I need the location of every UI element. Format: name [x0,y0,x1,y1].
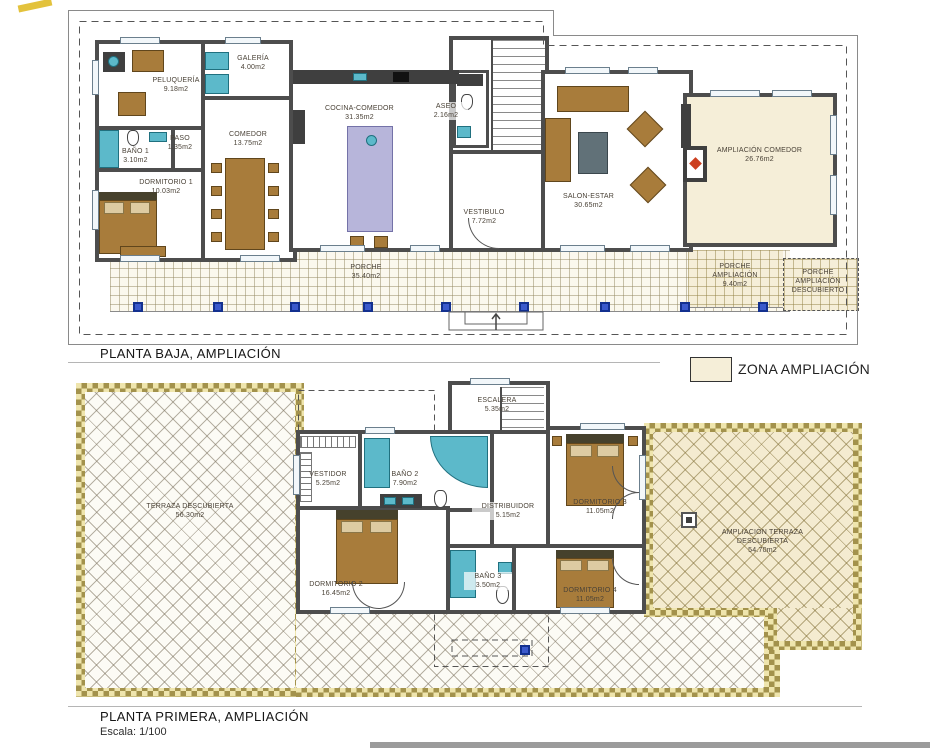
window [639,455,646,500]
porch-column [213,302,223,312]
entry-steps-inner [465,312,527,324]
room-area: 11.05m2 [558,507,642,516]
sink [402,497,414,505]
porch-column [133,302,143,312]
room-name: PORCHE AMPLIACIÓN DESCUBIERTO [782,268,854,295]
room-label-terraza: TERRAZA DESCUBIERTA 56.30m2 [130,502,250,520]
pillow [370,521,392,533]
room-name: DORMITORIO 2 [296,580,376,589]
terrace-column [681,512,697,528]
nightstand [552,436,562,446]
coffee-table [578,132,608,174]
chair [268,163,279,173]
room-area: 30.65m2 [546,201,631,210]
pillow [570,445,592,457]
room-name: TERRAZA DESCUBIERTA [130,502,250,511]
room-name: PELUQUERÍA [140,76,212,85]
bed-headboard [336,510,398,519]
room-area: 5.25m2 [298,479,358,488]
room-area: 7.90m2 [375,479,435,488]
plan1-title: PLANTA BAJA, AMPLIACIÓN [100,346,281,361]
nightstand [628,436,638,446]
window [92,190,99,230]
room-label-comedor: COMEDOR 13.75m2 [212,130,284,148]
room-label-escalera: ESCALERA 5.35m2 [452,396,542,414]
room-name: PORCHE [336,263,396,272]
window [710,90,760,97]
window [120,37,160,44]
window [630,245,670,252]
room-area: 13.75m2 [212,139,284,148]
porch-column [519,302,529,312]
room-area: 26.76m2 [712,155,807,164]
title-separator [68,362,660,363]
room-label-ampliacion-comedor: AMPLIACIÓN COMEDOR 26.76m2 [712,146,807,164]
sofa [545,118,571,182]
pillow [597,445,619,457]
staircase [491,40,545,152]
terraza-bottom-floor [296,610,764,688]
window [560,245,605,252]
window [320,245,365,252]
window [772,90,812,97]
dining-table [225,158,265,250]
porch-column [520,645,530,655]
window [225,37,261,44]
chair [268,209,279,219]
room-area: 31.35m2 [312,113,407,122]
room-area: 9.18m2 [140,85,212,94]
room-name: DISTRIBUIDOR [472,502,544,511]
room-area: 1.35m2 [158,143,202,152]
room-name: DORMITORIO 3 [558,498,642,507]
window [240,255,280,262]
drawing-sheet: PELUQUERÍA 9.18m2 GALERÍA 4.00m2 PASO 1.… [0,0,930,748]
porch-column [758,302,768,312]
room-name: DORMITORIO 1 [126,178,206,187]
room-name: VESTIDOR [298,470,358,479]
fireplace [683,146,707,182]
room-area: 54.70m2 [700,546,825,555]
room-label-dormitorio2: DORMITORIO 2 16.45m2 [296,580,376,598]
room-area: 4.00m2 [222,63,284,72]
room-name: COMEDOR [212,130,284,139]
room-label-ampliacion-terraza: AMPLIACIÓN TERRAZA DESCUBIERTA 54.70m2 [700,528,825,555]
aseo-counter [457,74,483,86]
scale-note: Escala: 1/100 [100,726,167,738]
window [628,67,658,74]
room-area: 3.10m2 [108,156,163,165]
chair [211,209,222,219]
corner-mark [18,0,53,12]
porch-column [363,302,373,312]
wash-basin [108,56,119,67]
room-name: AMPLIACIÓN TERRAZA DESCUBIERTA [700,528,825,546]
vanity [380,494,422,508]
room-label-peluqueria: PELUQUERÍA 9.18m2 [140,76,212,94]
pillow [560,560,582,571]
pillow [104,202,124,214]
room-area: 5.35m2 [452,405,542,414]
room-label-cocina: COCINA-COMEDOR 31.35m2 [312,104,407,122]
window [580,423,625,430]
sink [457,126,471,138]
room-label-bano3: BAÑO 3 3.50m2 [464,572,512,590]
kitchen-island-table [347,126,393,232]
armchair [132,50,164,72]
room-label-galeria: GALERÍA 4.00m2 [222,54,284,72]
room-name: AMPLIACIÓN COMEDOR [712,146,807,155]
legend-swatch [690,357,732,382]
room-name: PORCHE AMPLIACIÓN [696,262,774,280]
toilet [127,130,139,146]
island-sink [366,135,377,146]
bed-double [336,510,398,584]
ampliacion-terraza-step-floor [777,608,853,641]
room-area: 11.05m2 [548,595,632,604]
window [830,175,837,215]
interior-wall [453,150,545,154]
chair [268,186,279,196]
chair [211,232,222,242]
room-label-vestidor: VESTIDOR 5.25m2 [298,470,358,488]
plan2-title: PLANTA PRIMERA, AMPLIACIÓN [100,709,309,724]
column-core [686,517,692,523]
title-separator [68,706,862,707]
room-label-porche-ampliacion: PORCHE AMPLIACIÓN 9.40m2 [696,262,774,289]
sofa [557,86,629,112]
window [470,378,510,385]
room-area: 5.15m2 [472,511,544,520]
room-area: 2.16m2 [424,111,468,120]
entry-arrow-icon [492,314,500,330]
room-name: ASEO [424,102,468,111]
room-name: BAÑO 3 [464,572,512,581]
bed-headboard [556,550,614,558]
toilet [434,490,447,508]
room-label-aseo: ASEO 2.16m2 [424,102,468,120]
fridge [293,110,305,144]
tv-cabinet [681,104,691,148]
window [365,427,395,434]
window [120,255,160,262]
room-name: ESCALERA [452,396,542,405]
room-area: 16.45m2 [296,589,376,598]
legend-label: ZONA AMPLIACIÓN [738,361,870,377]
room-area: 35.40m2 [336,272,396,281]
window [830,115,837,155]
room-label-porche: PORCHE 35.40m2 [336,263,396,281]
room-area: 9.40m2 [696,280,774,289]
room-name: BAÑO 1 [108,147,163,156]
wardrobe-rack [300,436,356,448]
room-area: 56.30m2 [130,511,250,520]
room-label-porche-descubierto: PORCHE AMPLIACIÓN DESCUBIERTO [782,268,854,295]
room-label-bano2: BAÑO 2 7.90m2 [375,470,435,488]
room-label-dormitorio1: DORMITORIO 1 10.03m2 [126,178,206,196]
room-name: COCINA-COMEDOR [312,104,407,113]
kitchen-counter [293,70,459,84]
room-label-salon: SALON-ESTAR 30.65m2 [546,192,631,210]
porch-column [680,302,690,312]
salon-wash-unit [103,52,125,72]
terraza-floor [85,392,295,688]
room-area: 10.03m2 [126,187,206,196]
stove [393,72,409,82]
window [565,67,610,74]
window [410,245,440,252]
plan2-projection-dashed [299,391,435,431]
sink [384,497,396,505]
room-name: BAÑO 2 [375,470,435,479]
room-area: 7.72m2 [450,217,518,226]
room-name: DORMITORIO 4 [548,586,632,595]
armchair [118,92,146,116]
bed-double [99,192,157,254]
chair [211,163,222,173]
chair [211,186,222,196]
room-name: PASO [158,134,202,143]
room-label-dormitorio3: DORMITORIO 3 11.05m2 [558,498,642,516]
room-label-bano1: BAÑO 1 3.10m2 [108,147,163,165]
room-name: VESTIBULO [450,208,518,217]
room-name: SALON-ESTAR [546,192,631,201]
porch-column [290,302,300,312]
pillow [587,560,609,571]
window [92,60,99,95]
porch-column [441,302,451,312]
room-label-distribuidor: DISTRIBUIDOR 5.15m2 [472,502,544,520]
room-label-paso: PASO 1.35m2 [158,134,202,152]
pillow [341,521,363,533]
chair [268,232,279,242]
window [330,607,370,614]
bed-headboard [566,434,624,443]
entry-steps [449,312,543,330]
room-label-dormitorio4: DORMITORIO 4 11.05m2 [548,586,632,604]
porch-column [600,302,610,312]
bottom-bar [370,742,930,748]
room-name: GALERÍA [222,54,284,63]
pillow [130,202,150,214]
room-area: 3.50m2 [464,581,512,590]
kitchen-sink [353,73,367,81]
window [560,607,610,614]
room-label-vestibulo: VESTIBULO 7.72m2 [450,208,518,226]
stool [374,236,388,248]
